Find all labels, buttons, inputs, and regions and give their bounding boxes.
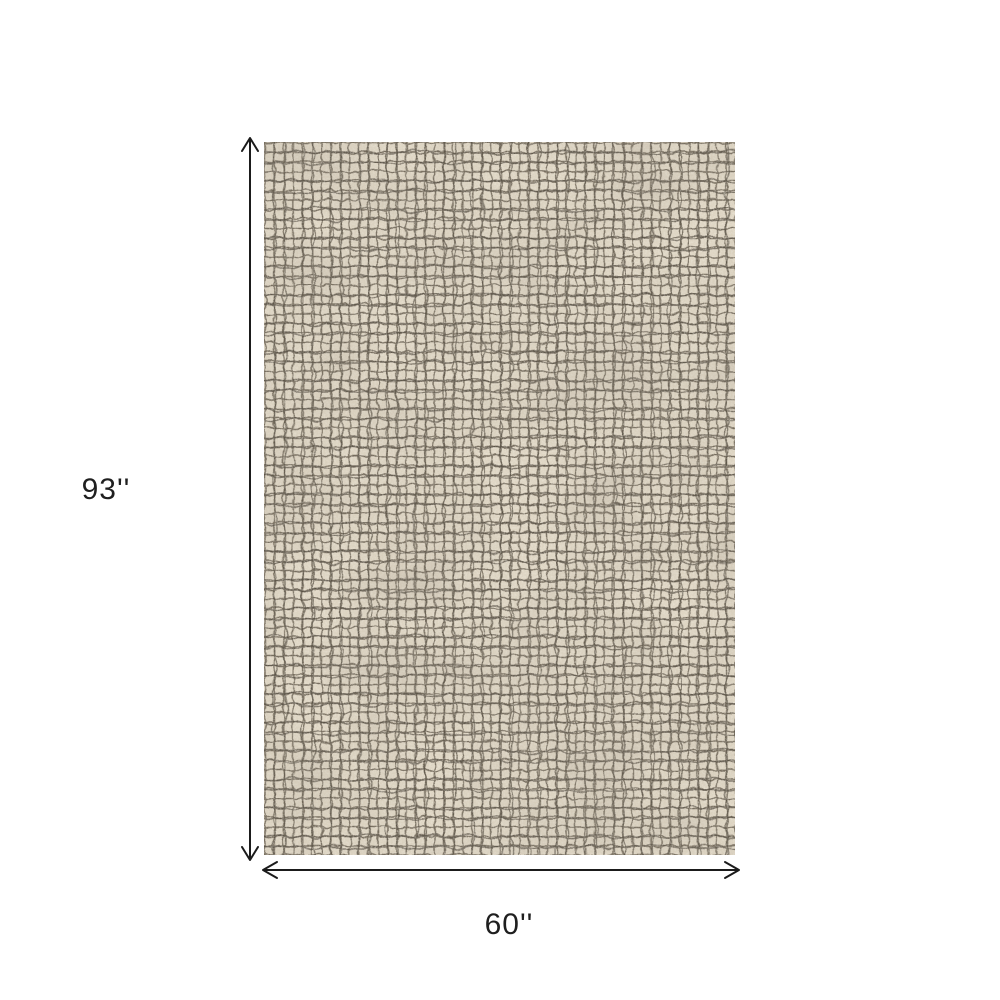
height-dimension-label: 93'' (82, 475, 131, 505)
height-arrow (240, 134, 260, 864)
rug-shading-overlay (264, 142, 735, 855)
width-dimension-label: 60'' (485, 910, 534, 940)
dimension-diagram: 93'' 60'' (0, 0, 1000, 1000)
rug-image (264, 142, 735, 855)
width-arrow (259, 860, 743, 880)
